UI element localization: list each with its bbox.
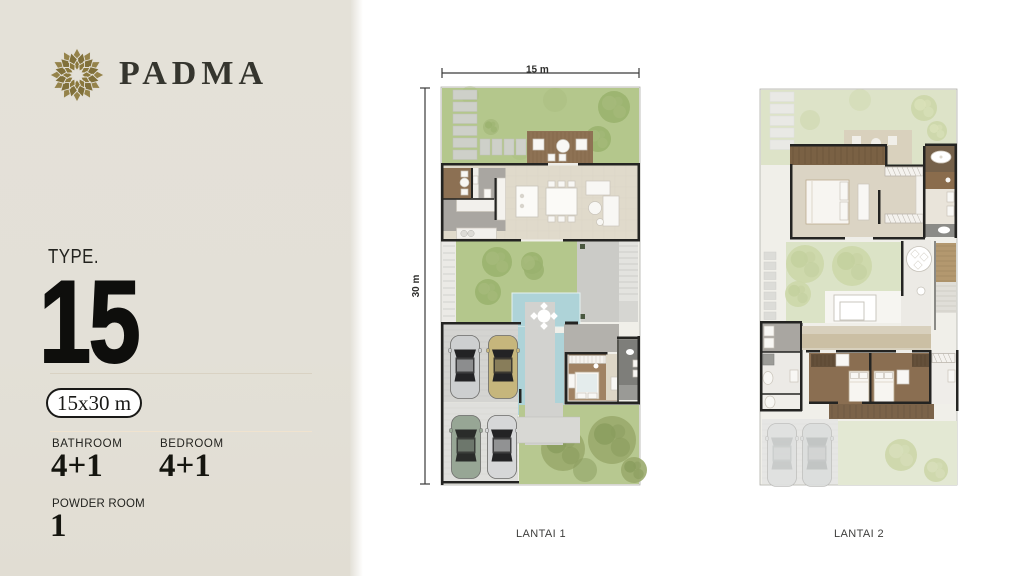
svg-text:15 m: 15 m xyxy=(526,65,549,76)
svg-text:30 m: 30 m xyxy=(411,274,422,297)
